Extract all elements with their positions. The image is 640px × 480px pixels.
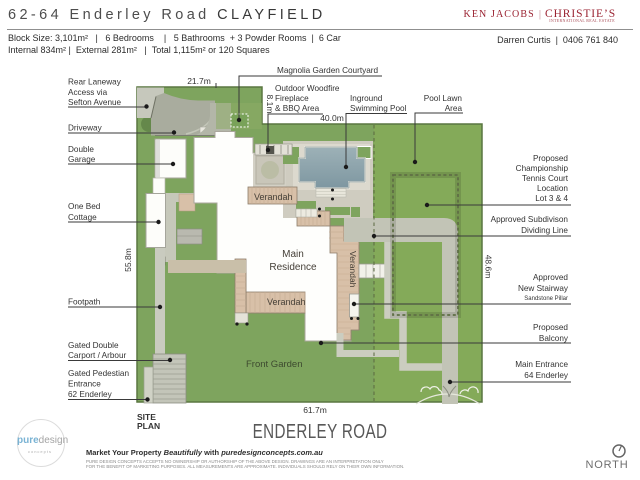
svg-text:Verandah: Verandah <box>348 251 358 288</box>
svg-text:Dividing Line: Dividing Line <box>521 226 568 235</box>
svg-text:Gated Pedestian: Gated Pedestian <box>68 369 129 378</box>
svg-text:64 Enderley: 64 Enderley <box>524 371 569 380</box>
svg-text:Verandah: Verandah <box>267 297 306 307</box>
svg-text:Sefton Avenue: Sefton Avenue <box>68 98 122 107</box>
svg-text:Tennis Court: Tennis Court <box>522 174 569 183</box>
svg-text:40.0m: 40.0m <box>320 113 344 123</box>
svg-text:8.1m: 8.1m <box>265 95 275 114</box>
svg-text:Carport / Arbour: Carport / Arbour <box>68 351 127 360</box>
svg-text:Main: Main <box>282 249 304 260</box>
svg-text:Main Entrance: Main Entrance <box>515 360 568 369</box>
svg-text:Double: Double <box>68 145 94 154</box>
svg-text:Balcony: Balcony <box>539 334 569 343</box>
svg-text:Inground: Inground <box>350 94 383 103</box>
svg-text:Garage: Garage <box>68 155 96 164</box>
svg-text:Entrance: Entrance <box>68 380 101 389</box>
svg-text:Pool Lawn: Pool Lawn <box>424 94 463 103</box>
svg-text:55.8m: 55.8m <box>123 248 133 272</box>
svg-text:Outdoor Woodfire: Outdoor Woodfire <box>275 84 340 93</box>
svg-text:Magnolia Garden Courtyard: Magnolia Garden Courtyard <box>277 66 378 75</box>
svg-text:21.7m: 21.7m <box>187 76 211 86</box>
svg-text:62 Enderley: 62 Enderley <box>68 390 113 399</box>
svg-text:Cottage: Cottage <box>68 213 97 222</box>
svg-text:One Bed: One Bed <box>68 202 101 211</box>
svg-text:Gated Double: Gated Double <box>68 341 119 350</box>
svg-text:Swimming Pool: Swimming Pool <box>350 104 407 113</box>
svg-text:New Stairway: New Stairway <box>518 284 569 293</box>
svg-text:Driveway: Driveway <box>68 124 103 133</box>
svg-text:Front Garden: Front Garden <box>246 359 303 370</box>
svg-text:48.6m: 48.6m <box>484 255 494 279</box>
svg-text:Access via: Access via <box>68 88 108 97</box>
svg-text:Location: Location <box>537 184 568 193</box>
svg-text:Approved: Approved <box>533 273 568 282</box>
svg-text:Proposed: Proposed <box>533 154 568 163</box>
svg-text:61.7m: 61.7m <box>303 405 327 415</box>
svg-text:Championship: Championship <box>516 164 569 173</box>
svg-text:Fireplace: Fireplace <box>275 94 309 103</box>
svg-text:& BBQ Area: & BBQ Area <box>275 104 320 113</box>
svg-text:Lot 3 & 4: Lot 3 & 4 <box>535 194 568 203</box>
svg-text:Proposed: Proposed <box>533 323 568 332</box>
svg-text:Approved Subdivison: Approved Subdivison <box>491 215 569 224</box>
svg-text:Rear Laneway: Rear Laneway <box>68 78 122 87</box>
svg-text:Verandah: Verandah <box>254 192 293 202</box>
svg-text:Footpath: Footpath <box>68 298 101 307</box>
svg-text:Sandstone Pillar: Sandstone Pillar <box>524 296 568 302</box>
svg-text:Residence: Residence <box>269 262 317 273</box>
svg-text:Area: Area <box>445 104 463 113</box>
